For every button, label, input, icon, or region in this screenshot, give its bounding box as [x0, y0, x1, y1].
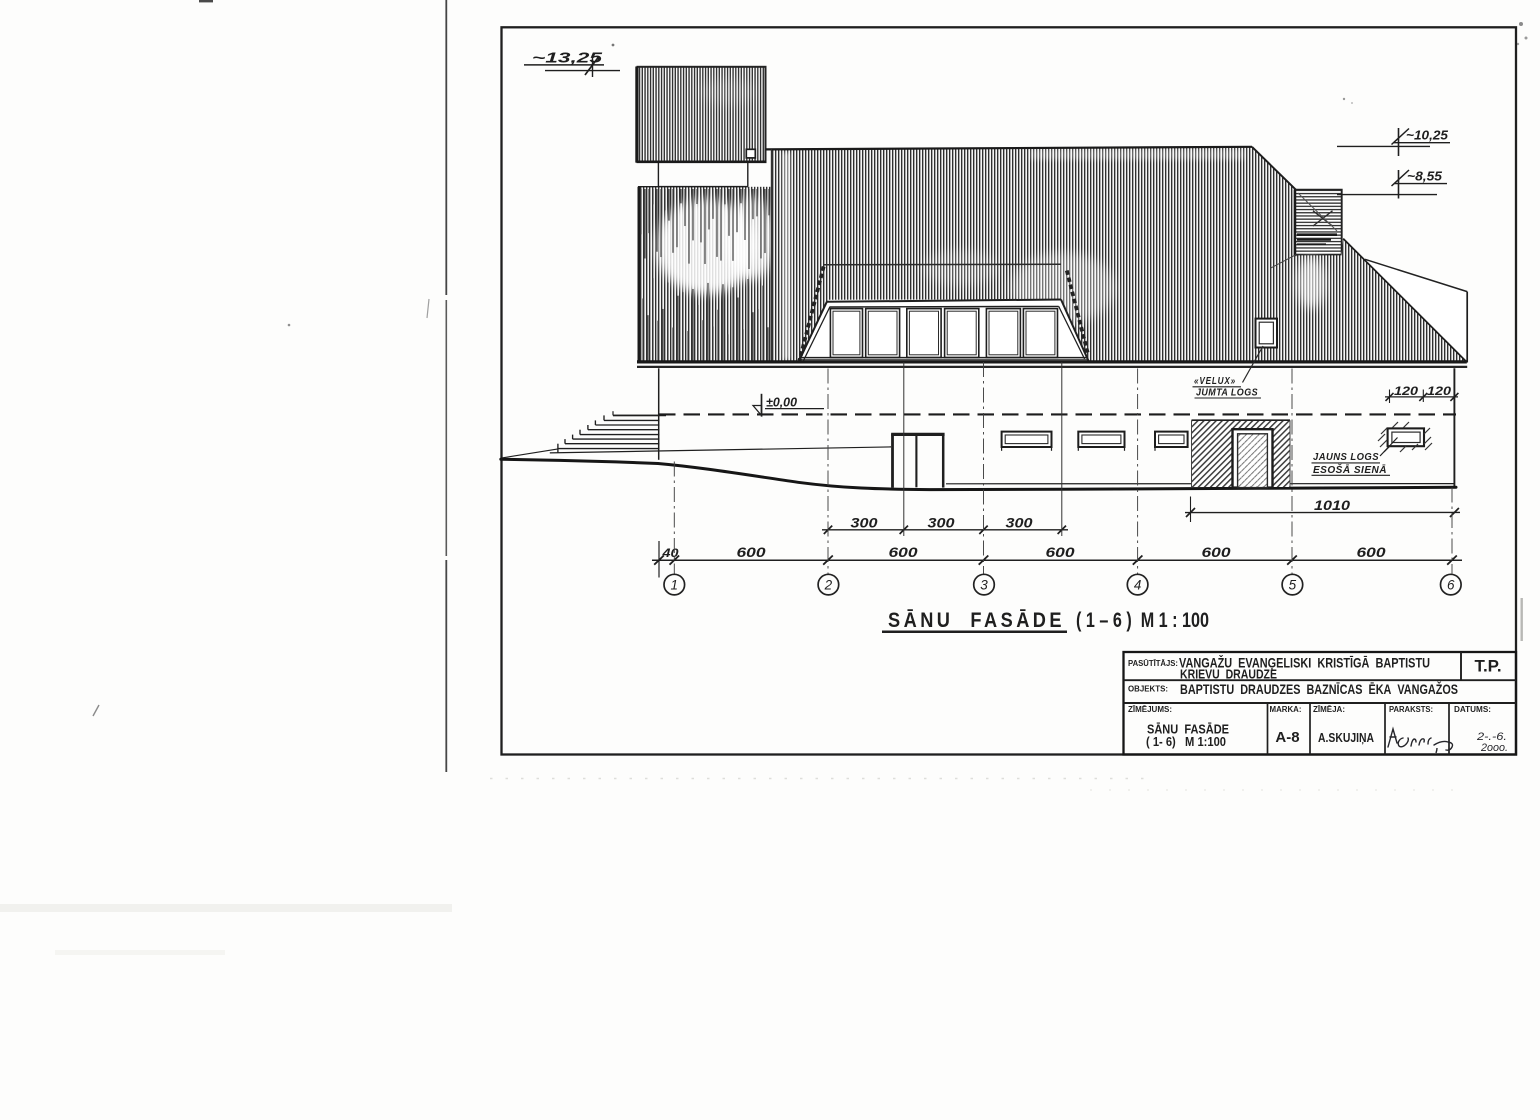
svg-text:«VELUX»: «VELUX» [1194, 376, 1236, 387]
svg-text:SĀNU FASĀDE: SĀNU FASĀDE [888, 609, 1065, 632]
svg-text:( 1- 6) M 1:100: ( 1- 6) M 1:100 [1146, 735, 1226, 749]
svg-text:BAPTISTU DRAUDZES BAZNĪCAS: BAPTISTU DRAUDZES BAZNĪCAS ĒKA VANGAŽOS [1180, 680, 1458, 697]
svg-text:5: 5 [1289, 578, 1297, 593]
svg-text:300: 300 [851, 515, 879, 530]
svg-text:T.P.: T.P. [1474, 657, 1501, 676]
svg-text:300: 300 [1006, 515, 1034, 530]
svg-text:±0,00: ±0,00 [766, 396, 797, 410]
svg-text:300: 300 [928, 515, 956, 530]
svg-text:MARKA:: MARKA: [1270, 705, 1302, 714]
svg-text:2: 2 [824, 578, 833, 593]
svg-text:DATUMS:: DATUMS: [1454, 705, 1491, 714]
svg-text:1010: 1010 [1314, 497, 1350, 513]
svg-text:OBJEKTS:: OBJEKTS: [1128, 685, 1168, 694]
svg-text:600: 600 [889, 544, 918, 560]
svg-text:JUMTA LOGS: JUMTA LOGS [1196, 387, 1258, 399]
svg-text:3: 3 [980, 578, 988, 593]
svg-text:2οοο.: 2οοο. [1480, 742, 1508, 754]
svg-text:~8,55: ~8,55 [1407, 170, 1443, 184]
svg-text:( 1 – 6 ) M 1 : 100: ( 1 – 6 ) M 1 : 100 [1076, 609, 1209, 632]
svg-text:600: 600 [1357, 544, 1386, 560]
svg-text:600: 600 [737, 544, 766, 560]
svg-text:1: 1 [671, 578, 679, 593]
svg-text:JAUNS LOGS: JAUNS LOGS [1313, 451, 1379, 463]
svg-text:A-8: A-8 [1275, 729, 1299, 746]
svg-text:PARAKSTS:: PARAKSTS: [1389, 705, 1433, 714]
svg-text:A.SKUJIŅA: A.SKUJIŅA [1318, 730, 1374, 745]
svg-text:40: 40 [661, 548, 679, 560]
svg-text:600: 600 [1202, 544, 1231, 560]
svg-text:ESOŠĀ SIENĀ: ESOŠĀ SIENĀ [1313, 463, 1387, 476]
svg-text:120: 120 [1394, 386, 1419, 398]
svg-text:PASŪTĪTĀJS:: PASŪTĪTĀJS: [1128, 659, 1178, 668]
svg-text:ZĪMĒJA:: ZĪMĒJA: [1313, 705, 1345, 714]
svg-text:600: 600 [1046, 544, 1075, 560]
svg-text:~10,25: ~10,25 [1406, 129, 1449, 143]
svg-text:KRIEVU DRAUDZE: KRIEVU DRAUDZE [1180, 666, 1277, 681]
svg-text:4: 4 [1134, 578, 1142, 593]
svg-text:6: 6 [1447, 578, 1455, 593]
svg-text:120: 120 [1427, 386, 1452, 398]
svg-text:ZĪMĒJUMS:: ZĪMĒJUMS: [1128, 705, 1172, 714]
